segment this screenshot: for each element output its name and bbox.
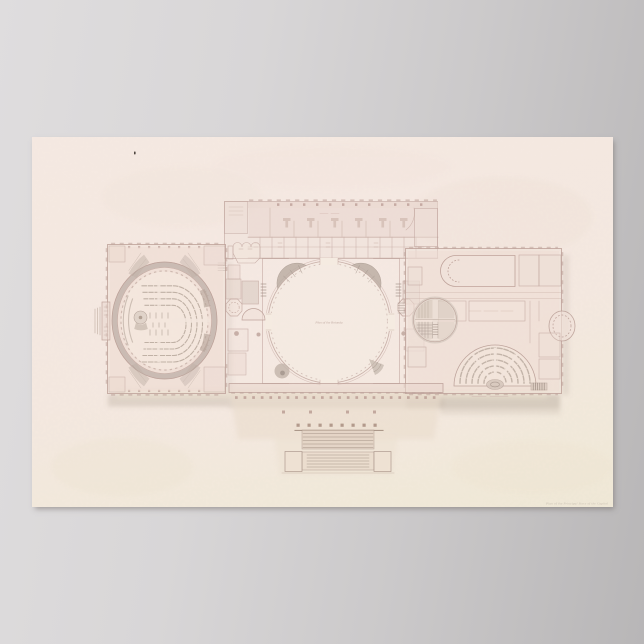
svg-text:Plan of the Rotunda: Plan of the Rotunda bbox=[314, 320, 343, 324]
svg-text:Plan of the Principal Story of: Plan of the Principal Story of the Capit… bbox=[545, 501, 608, 505]
